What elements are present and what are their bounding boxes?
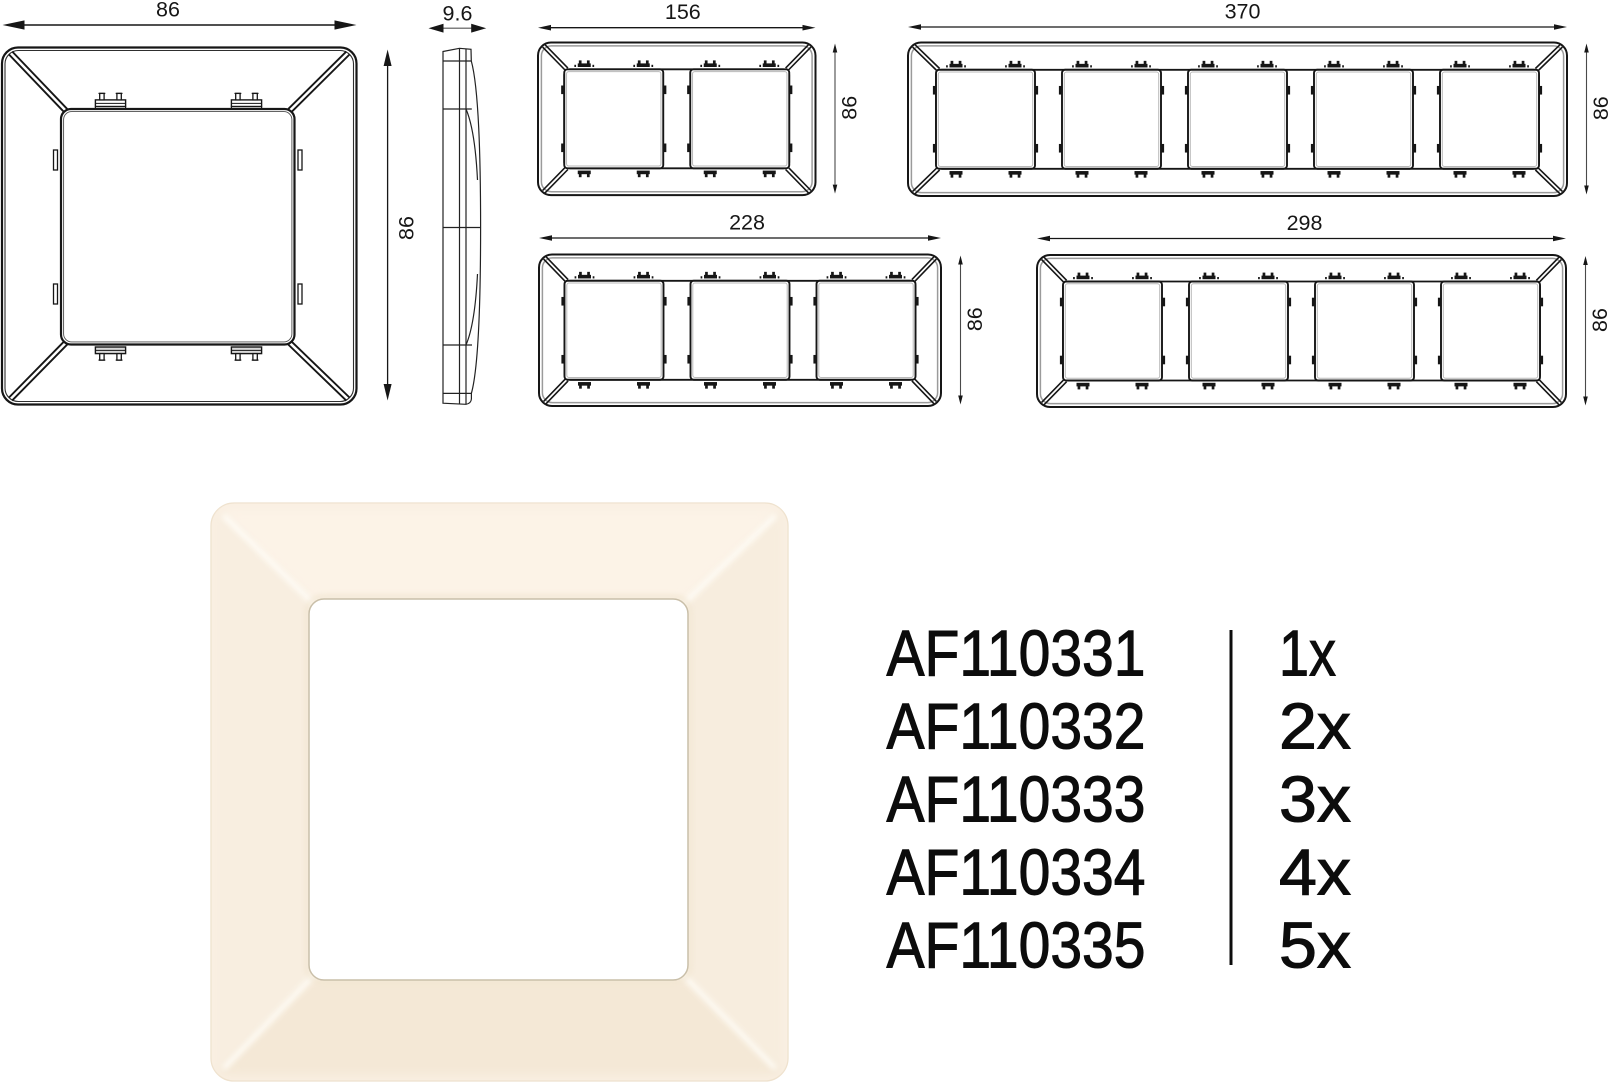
- svg-text:370: 370: [1225, 0, 1261, 24]
- svg-text:228: 228: [729, 211, 765, 235]
- svg-text:9.6: 9.6: [443, 2, 473, 26]
- svg-text:3x: 3x: [1279, 764, 1351, 836]
- svg-text:AF110331: AF110331: [887, 618, 1146, 690]
- svg-text:156: 156: [665, 0, 701, 24]
- svg-text:5x: 5x: [1279, 910, 1351, 982]
- svg-text:AF110333: AF110333: [887, 764, 1146, 836]
- svg-text:86: 86: [838, 96, 862, 120]
- svg-text:AF110334: AF110334: [887, 837, 1146, 909]
- svg-text:86: 86: [1588, 308, 1612, 332]
- svg-text:1x: 1x: [1279, 618, 1336, 690]
- svg-text:2x: 2x: [1279, 691, 1351, 763]
- svg-text:86: 86: [1589, 96, 1613, 120]
- svg-text:86: 86: [156, 0, 180, 22]
- svg-text:4x: 4x: [1279, 837, 1351, 909]
- svg-text:86: 86: [963, 307, 987, 331]
- svg-text:AF110332: AF110332: [887, 691, 1146, 763]
- svg-text:298: 298: [1287, 211, 1323, 235]
- svg-text:86: 86: [395, 216, 419, 240]
- svg-text:AF110335: AF110335: [887, 910, 1146, 982]
